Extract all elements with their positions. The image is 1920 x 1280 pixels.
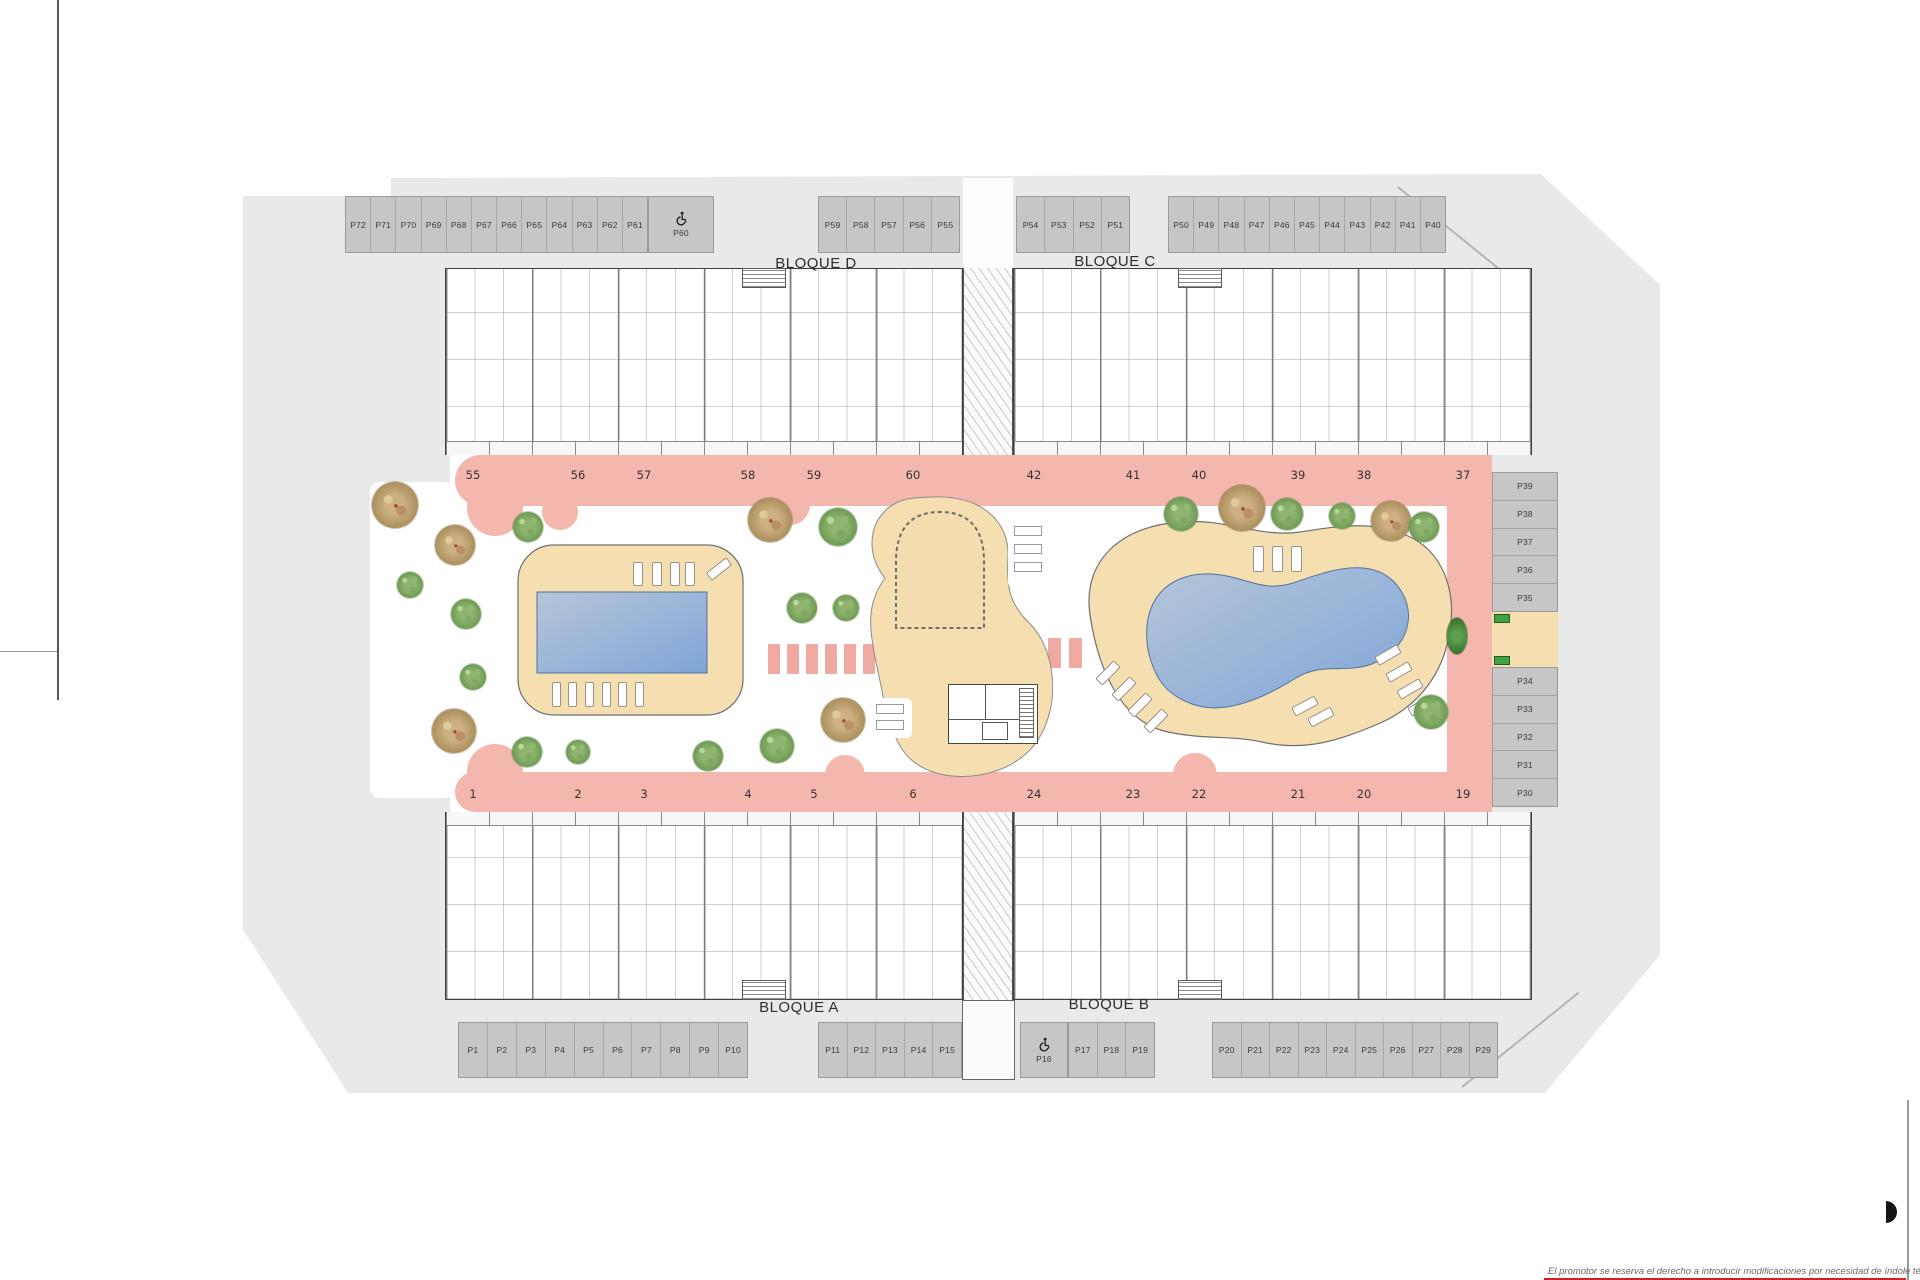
- parking-slot-label: P36: [1517, 565, 1533, 575]
- parking-slot-label: P29: [1475, 1045, 1491, 1055]
- pool-house-wall: [949, 719, 1019, 720]
- parking-group: P50P49P48P47P46P45P44P43P42P41P40: [1168, 196, 1446, 253]
- parking-slot-label: P6: [612, 1045, 623, 1055]
- balcony-strip: [1014, 812, 1531, 826]
- parking-slot: P14: [904, 1023, 933, 1077]
- parking-group: P59P58P57P56P55: [818, 196, 960, 253]
- parking-slot-label: P55: [938, 220, 954, 230]
- parking-slot-label: P69: [426, 220, 442, 230]
- parking-slot: P48: [1218, 197, 1243, 252]
- bench: [1014, 526, 1042, 536]
- parking-slot: P52: [1073, 197, 1101, 252]
- parking-slot: P27: [1412, 1023, 1441, 1077]
- parking-slot: P39: [1493, 473, 1557, 500]
- parking-slot-label: P27: [1418, 1045, 1434, 1055]
- parking-slot: P40: [1420, 197, 1445, 252]
- terrace-number: 59: [807, 468, 822, 482]
- parking-slot: P45: [1294, 197, 1319, 252]
- parking-slot-label: P30: [1517, 788, 1533, 798]
- parking-slot-label: P23: [1304, 1045, 1320, 1055]
- parking-slot: P11: [819, 1023, 847, 1077]
- terrace-number: 4: [744, 787, 751, 801]
- parking-slot-label: P32: [1517, 732, 1533, 742]
- stepping-stone: [1069, 638, 1082, 668]
- parking-slot-label: P21: [1247, 1045, 1263, 1055]
- terrace-number: 5: [810, 787, 817, 801]
- parking-slot: P66: [496, 197, 521, 252]
- hedge-marker: [1494, 656, 1510, 665]
- parking-slot: P54: [1017, 197, 1044, 252]
- building-bloque-d: [445, 268, 963, 455]
- parking-slot: P4: [545, 1023, 574, 1077]
- site-plan: { "blocks": { "top_left": "BLOQUE D", "t…: [0, 0, 1920, 1280]
- parking-slot: P15: [932, 1023, 961, 1077]
- tree-icon: [760, 729, 794, 763]
- stair-core: [1178, 980, 1222, 1000]
- stepping-stone: [806, 644, 818, 674]
- building-bloque-b: [1013, 812, 1532, 1000]
- bench: [1014, 562, 1042, 572]
- parking-group: P20P21P22P23P24P25P26P27P28P29: [1212, 1022, 1498, 1078]
- parking-slot-label: P15: [939, 1045, 955, 1055]
- tree-icon: [372, 482, 418, 528]
- tree-icon: [513, 512, 543, 542]
- parking-slot: P50: [1169, 197, 1193, 252]
- stepping-stone: [768, 644, 780, 674]
- parking-slot: P33: [1493, 695, 1557, 723]
- parking-slot: P7: [631, 1023, 660, 1077]
- balcony-strip: [446, 812, 962, 826]
- stepping-stone: [1048, 638, 1061, 668]
- parking-slot-label: P50: [1173, 220, 1189, 230]
- sun-lounger: [568, 682, 577, 707]
- tree-icon: [435, 525, 475, 565]
- parking-group: P1P2P3P4P5P6P7P8P9P10: [458, 1022, 748, 1078]
- parking-slot-label: P60: [673, 228, 689, 238]
- parking-slot: P1: [459, 1023, 487, 1077]
- frame-line-right: [1907, 1100, 1909, 1280]
- parking-slot-label: P63: [577, 220, 593, 230]
- tree-icon: [787, 593, 817, 623]
- sun-lounger: [685, 562, 695, 586]
- parking-group: P72P71P70P69P68P67P66P65P64P63P62P61: [345, 196, 648, 253]
- parking-slot-label: P38: [1517, 509, 1533, 519]
- parking-slot: P56: [903, 197, 931, 252]
- parking-slot: P22: [1269, 1023, 1298, 1077]
- parking-slot: P23: [1298, 1023, 1327, 1077]
- parking-slot-label: P49: [1198, 220, 1214, 230]
- parking-slot-label: P33: [1517, 704, 1533, 714]
- parking-slot-label: P71: [375, 220, 391, 230]
- parking-slot: P28: [1440, 1023, 1469, 1077]
- parking-slot: P25: [1355, 1023, 1384, 1077]
- tree-icon: [432, 709, 476, 753]
- tree-icon: [397, 572, 423, 598]
- parking-slot-label: P14: [911, 1045, 927, 1055]
- terrace-number: 42: [1027, 468, 1042, 482]
- parking-slot-label: P54: [1023, 220, 1039, 230]
- building-bloque-c: [1013, 268, 1532, 455]
- terrace-number: 58: [741, 468, 756, 482]
- parking-slot: P18: [1097, 1023, 1126, 1077]
- sun-lounger: [1272, 546, 1283, 572]
- sun-lounger: [652, 562, 662, 586]
- pool-house-wall: [985, 685, 986, 719]
- tree-icon: [819, 508, 857, 546]
- terrace-number: 2: [574, 787, 581, 801]
- parking-slot-label: P31: [1517, 760, 1533, 770]
- parking-slot: P67: [471, 197, 496, 252]
- terrace-number: 41: [1126, 468, 1141, 482]
- balcony-strip: [446, 441, 962, 455]
- parking-slot-label: P58: [853, 220, 869, 230]
- parking-slot: P61: [622, 197, 647, 252]
- parking-slot-label: P42: [1375, 220, 1391, 230]
- parking-slot: P55: [931, 197, 959, 252]
- page-marker-dot: [1886, 1201, 1897, 1223]
- disclaimer-underline: [1544, 1278, 1906, 1280]
- parking-slot: P51: [1101, 197, 1129, 252]
- terrace-number: 22: [1192, 787, 1207, 801]
- parking-group: P39P38P37P36P35: [1492, 472, 1558, 612]
- terrace-number: 57: [637, 468, 652, 482]
- parking-slot: P24: [1326, 1023, 1355, 1077]
- sun-lounger: [1253, 546, 1264, 572]
- stepping-stone: [825, 644, 837, 674]
- pool-house-room: [982, 722, 1008, 740]
- bench: [1014, 544, 1042, 554]
- parking-slot: P44: [1319, 197, 1344, 252]
- parking-slot-label: P37: [1517, 537, 1533, 547]
- parking-slot-accessible: P16: [1021, 1023, 1067, 1077]
- walkway-bottom: [455, 772, 1492, 812]
- parking-slot-label: P1: [468, 1045, 479, 1055]
- parking-slot: P41: [1395, 197, 1420, 252]
- parking-slot-label: P16: [1036, 1054, 1052, 1064]
- parking-slot-label: P22: [1276, 1045, 1292, 1055]
- walkway-planter-bump: [542, 494, 578, 530]
- terrace-number: 6: [909, 787, 916, 801]
- bench: [876, 720, 904, 730]
- terrace-number: 19: [1456, 787, 1471, 801]
- parking-slot: P17: [1069, 1023, 1097, 1077]
- terrace-number: 38: [1357, 468, 1372, 482]
- parking-slot-label: P72: [350, 220, 366, 230]
- stepping-stone: [882, 644, 894, 674]
- parking-slot-label: P41: [1400, 220, 1416, 230]
- sun-lounger: [635, 682, 644, 707]
- terrace-number: 24: [1027, 787, 1042, 801]
- parking-group: P16: [1020, 1022, 1068, 1078]
- building-bloque-a: [445, 812, 963, 1000]
- parking-slot: P36: [1493, 555, 1557, 583]
- parking-slot-label: P59: [825, 220, 841, 230]
- parking-slot-label: P25: [1361, 1045, 1377, 1055]
- bench: [876, 704, 904, 714]
- tree-icon: [1164, 497, 1198, 531]
- tree-icon: [1329, 503, 1355, 529]
- block-label-c: BLOQUE C: [1045, 253, 1185, 270]
- parking-slot: P21: [1241, 1023, 1270, 1077]
- parking-slot: P62: [597, 197, 622, 252]
- parking-slot-label: P48: [1224, 220, 1240, 230]
- parking-slot: P19: [1125, 1023, 1154, 1077]
- parking-slot: P59: [819, 197, 846, 252]
- sun-lounger: [585, 682, 594, 707]
- boundary-line-left-tick: [0, 651, 57, 652]
- tree-icon: [1271, 498, 1303, 530]
- parking-slot-label: P20: [1219, 1045, 1235, 1055]
- sun-lounger: [670, 562, 680, 586]
- parking-slot-label: P56: [909, 220, 925, 230]
- parking-slot-label: P28: [1447, 1045, 1463, 1055]
- tree-icon: [1409, 512, 1439, 542]
- parking-slot-label: P4: [554, 1045, 565, 1055]
- parking-slot: P3: [516, 1023, 545, 1077]
- parking-slot: P53: [1044, 197, 1072, 252]
- terrace-number: 40: [1192, 468, 1207, 482]
- tree-icon: [512, 737, 542, 767]
- parking-slot-label: P34: [1517, 676, 1533, 686]
- parking-slot: P49: [1193, 197, 1218, 252]
- parking-slot: P9: [689, 1023, 718, 1077]
- sun-lounger: [1291, 546, 1302, 572]
- parking-slot-label: P9: [699, 1045, 710, 1055]
- parking-slot: P46: [1269, 197, 1294, 252]
- parking-slot: P42: [1370, 197, 1395, 252]
- sun-lounger: [552, 682, 561, 707]
- parking-slot: P63: [572, 197, 597, 252]
- tree-icon: [1371, 501, 1411, 541]
- sun-lounger: [602, 682, 611, 707]
- central-corridor-lower: [963, 812, 1013, 1000]
- terrace-number: 39: [1291, 468, 1306, 482]
- central-corridor-upper: [963, 268, 1013, 455]
- parking-slot-label: P53: [1051, 220, 1067, 230]
- parking-slot: P12: [847, 1023, 876, 1077]
- terrace-number: 55: [466, 468, 481, 482]
- parking-slot: P43: [1344, 197, 1369, 252]
- parking-slot: P20: [1213, 1023, 1241, 1077]
- parking-slot: P2: [487, 1023, 516, 1077]
- parking-slot: P65: [521, 197, 546, 252]
- walkway-top: [455, 455, 1492, 506]
- parking-slot-label: P3: [525, 1045, 536, 1055]
- parking-slot-label: P68: [451, 220, 467, 230]
- pool-house-stairs: [1019, 688, 1034, 738]
- terrace-number: 23: [1126, 787, 1141, 801]
- parking-group: P54P53P52P51: [1016, 196, 1130, 253]
- parking-slot-label: P8: [670, 1045, 681, 1055]
- stair-core: [1178, 268, 1222, 288]
- parking-slot: P64: [546, 197, 571, 252]
- parking-slot: P69: [421, 197, 446, 252]
- parking-slot: P38: [1493, 500, 1557, 528]
- disclaimer-text: El promotor se reserva el derecho a intr…: [1548, 1266, 1920, 1277]
- bush-icon: [1447, 618, 1467, 654]
- parking-slot-label: P52: [1079, 220, 1095, 230]
- parking-slot: P31: [1493, 750, 1557, 778]
- boundary-line-left: [57, 0, 59, 700]
- parking-slot: P37: [1493, 528, 1557, 556]
- parking-slot-label: P61: [627, 220, 643, 230]
- parking-slot: P29: [1469, 1023, 1498, 1077]
- parking-slot: P26: [1383, 1023, 1412, 1077]
- wheelchair-icon: [674, 211, 689, 226]
- parking-slot-label: P5: [583, 1045, 594, 1055]
- tree-icon: [1414, 695, 1448, 729]
- hedge-marker: [1494, 614, 1510, 623]
- block-label-d: BLOQUE D: [746, 255, 886, 272]
- parking-slot: P72: [346, 197, 370, 252]
- parking-slot-label: P17: [1075, 1045, 1091, 1055]
- parking-slot: P47: [1244, 197, 1269, 252]
- parking-slot-label: P51: [1108, 220, 1124, 230]
- parking-slot-label: P57: [881, 220, 897, 230]
- terrace-number: 56: [571, 468, 586, 482]
- parking-slot-label: P47: [1249, 220, 1265, 230]
- stepping-stone: [787, 644, 799, 674]
- terrace-number: 37: [1456, 468, 1471, 482]
- parking-slot-label: P45: [1299, 220, 1315, 230]
- parking-slot-label: P35: [1517, 593, 1533, 603]
- tree-icon: [833, 595, 859, 621]
- parking-slot: P13: [875, 1023, 904, 1077]
- parking-slot-label: P62: [602, 220, 618, 230]
- parking-slot-label: P7: [641, 1045, 652, 1055]
- parking-slot-label: P2: [496, 1045, 507, 1055]
- parking-slot: P10: [718, 1023, 747, 1077]
- parking-slot: P68: [446, 197, 471, 252]
- parking-slot-label: P67: [476, 220, 492, 230]
- parking-slot: P30: [1493, 778, 1557, 806]
- parking-group: P60: [648, 196, 714, 253]
- parking-slot-label: P13: [882, 1045, 898, 1055]
- parking-slot-label: P43: [1350, 220, 1366, 230]
- terrace-number: 60: [906, 468, 921, 482]
- parking-slot-label: P19: [1132, 1045, 1148, 1055]
- tree-icon: [460, 664, 486, 690]
- block-label-b: BLOQUE B: [1039, 996, 1179, 1013]
- corridor-exit-box: [962, 1000, 1015, 1080]
- parking-slot-label: P66: [501, 220, 517, 230]
- tree-icon: [693, 741, 723, 771]
- parking-slot: P71: [370, 197, 395, 252]
- block-label-a: BLOQUE A: [729, 999, 869, 1016]
- parking-slot-label: P65: [526, 220, 542, 230]
- terrace-number: 20: [1357, 787, 1372, 801]
- terrace-number: 1: [469, 787, 476, 801]
- top-entry-gap: [963, 178, 1013, 270]
- parking-slot-label: P12: [854, 1045, 870, 1055]
- parking-slot-label: P44: [1324, 220, 1340, 230]
- pool-house: [948, 684, 1038, 744]
- parking-slot-label: P26: [1390, 1045, 1406, 1055]
- parking-slot-label: P11: [825, 1045, 840, 1055]
- parking-slot: P70: [395, 197, 420, 252]
- parking-slot-label: P46: [1274, 220, 1290, 230]
- terrace-number: 21: [1291, 787, 1306, 801]
- parking-slot: P6: [603, 1023, 632, 1077]
- tree-icon: [566, 740, 590, 764]
- parking-slot-accessible: P60: [649, 197, 713, 252]
- tree-icon: [1219, 485, 1265, 531]
- parking-group: P17P18P19: [1068, 1022, 1155, 1078]
- parking-slot-label: P39: [1517, 481, 1533, 491]
- parking-slot: P35: [1493, 583, 1557, 611]
- parking-slot: P8: [660, 1023, 689, 1077]
- parking-group: P34P33P32P31P30: [1492, 667, 1558, 807]
- tree-icon: [748, 498, 792, 542]
- sun-lounger: [633, 562, 643, 586]
- parking-slot-label: P70: [401, 220, 417, 230]
- parking-slot-label: P10: [725, 1045, 741, 1055]
- parking-slot: P58: [846, 197, 874, 252]
- parking-slot-label: P64: [552, 220, 568, 230]
- stepping-stone: [844, 644, 856, 674]
- parking-slot: P32: [1493, 723, 1557, 751]
- parking-slot-label: P24: [1333, 1045, 1349, 1055]
- wheelchair-icon: [1037, 1037, 1052, 1052]
- terrace-number: 3: [640, 787, 647, 801]
- parking-slot-label: P40: [1425, 220, 1441, 230]
- stepping-stone: [863, 644, 875, 674]
- parking-slot: P57: [874, 197, 902, 252]
- parking-slot-label: P18: [1104, 1045, 1120, 1055]
- parking-slot: P34: [1493, 668, 1557, 695]
- parking-group: P11P12P13P14P15: [818, 1022, 962, 1078]
- parking-slot: P5: [574, 1023, 603, 1077]
- balcony-strip: [1014, 441, 1531, 455]
- stair-core: [742, 980, 786, 1000]
- walkway-planter-bump: [825, 755, 865, 795]
- tree-icon: [451, 599, 481, 629]
- tree-icon: [821, 698, 865, 742]
- sun-lounger: [618, 682, 627, 707]
